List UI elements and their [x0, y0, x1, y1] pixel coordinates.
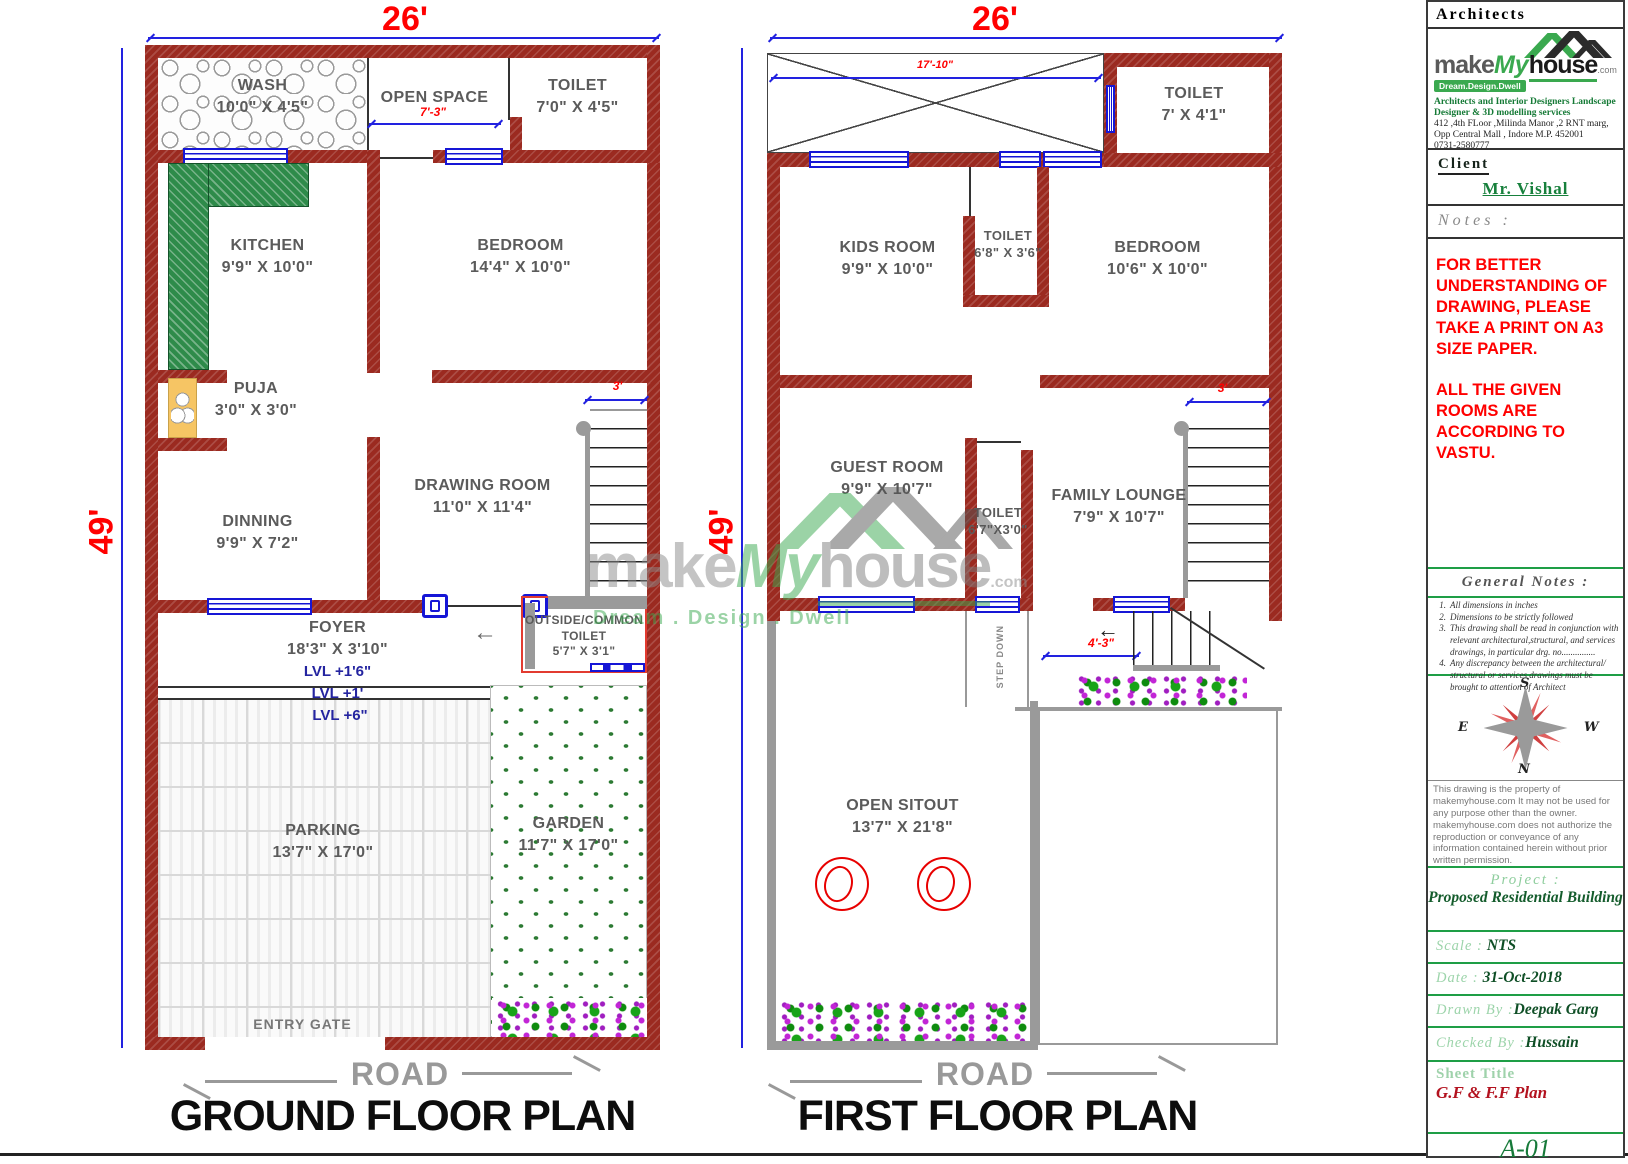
partition-line: [977, 441, 1021, 443]
stair-newel: [1174, 421, 1189, 436]
wall: [963, 295, 1049, 307]
wall: [145, 45, 158, 1050]
gf-title: GROUND FLOOR PLAN: [145, 1092, 660, 1141]
planter-flowers: [1073, 673, 1247, 707]
staircase-lower-treads: [1133, 611, 1220, 667]
ff-width-dim: 26': [945, 0, 1045, 39]
ff-title: FIRST FLOOR PLAN: [740, 1092, 1255, 1141]
first-floor-plan: 17'-10" 3' STEP DOWN 4'-3" ←: [767, 45, 1282, 1050]
staircase-treads: [590, 428, 647, 600]
compass-block: S E W N: [1428, 676, 1623, 780]
room-label-bedroom: BEDROOM 10'6" X 10'0": [1065, 237, 1250, 282]
ground-floor-plan: 3' ← WASH 10'0" X 4'5" OPEN SPACE 7'-3" …: [145, 45, 660, 1050]
wall: [1269, 53, 1282, 621]
general-note: 2.Dimensions to be strictly followed: [1430, 612, 1619, 624]
wall: [367, 437, 380, 600]
client-label: Client: [1438, 156, 1489, 175]
step-down-label: STEP DOWN: [995, 625, 1005, 688]
room-label-kids-room: KIDS ROOM 9'9" X 10'0": [795, 237, 980, 282]
wall: [647, 45, 660, 1050]
room-label-garden: GARDEN 11'7" X 17'0": [497, 813, 640, 858]
level-label-mid: LVL +1': [260, 685, 415, 702]
copyright-text: This drawing is the property of makemyho…: [1428, 780, 1623, 866]
garden-flower-bed: [492, 998, 647, 1037]
garden-pattern: [490, 685, 647, 1037]
stair-newel: [576, 421, 591, 436]
general-note: 3.This drawing shall be read in conjunct…: [1430, 623, 1619, 658]
logo-block: makeMyhouse.com Dream.Design.Dwell: [1428, 29, 1623, 95]
sheet-title-value: G.F & F.F Plan: [1436, 1083, 1615, 1103]
sheet-title-block: Sheet Title G.F & F.F Plan: [1428, 1060, 1623, 1132]
wall: [780, 598, 818, 611]
ff-road-line-left: [790, 1080, 922, 1083]
gf-width-dim-line: [148, 37, 659, 39]
project-block: Project : Proposed Residential Building: [1428, 866, 1623, 930]
compass-star: [1484, 686, 1568, 770]
level-label-foyer: LVL +1'6": [265, 663, 410, 680]
room-label-toilet-low: TOILET 6'7"X3'0": [960, 505, 1036, 539]
wall: [1104, 53, 1282, 67]
corridor-line: [1027, 611, 1029, 707]
stair-rail: [585, 428, 590, 600]
wall: [158, 438, 227, 451]
gf-stair-dim-line: [585, 399, 647, 401]
firm-address2: Opp Central Mall , Indore M.P. 452001: [1434, 130, 1617, 141]
puja-platform: [168, 378, 197, 438]
gf-road-line-right: [462, 1072, 572, 1075]
stair-landing-line: [590, 409, 647, 411]
ff-height-dim: 49': [703, 502, 742, 562]
general-notes-list: 1.All dimensions in inches 2.Dimensions …: [1428, 598, 1623, 676]
title-block: Architects makeMyhouse.com Dream.Design.…: [1426, 0, 1625, 1158]
ff-stair-dim-line: [1187, 401, 1269, 403]
wall: [145, 45, 660, 58]
wall: [145, 1037, 205, 1050]
room-label-kitchen: KITCHEN 9'9" X 10'0": [185, 235, 350, 280]
sitout-flower-bed: [776, 999, 1030, 1041]
direction-arrow-icon: ←: [473, 621, 497, 645]
scale-row: Scale : NTS: [1428, 930, 1623, 962]
gray-wall: [1133, 665, 1220, 671]
ff-stair-dim: 3': [1195, 381, 1250, 395]
general-note: 1.All dimensions in inches: [1430, 600, 1619, 612]
room-label-guest-room: GUEST ROOM 9'9" X 10'7": [792, 457, 982, 502]
gray-wall: [767, 621, 776, 1050]
notes-body: FOR BETTER UNDERSTANDING OF DRAWING, PLE…: [1428, 239, 1623, 567]
door-symbol: [422, 594, 448, 618]
gf-stair-dim: 3': [590, 379, 645, 393]
room-label-open-sitout: OPEN SITOUT 13'7" X 21'8": [815, 795, 990, 840]
puja-flower-icon: [171, 387, 194, 429]
ff-road-tick-right: [1158, 1055, 1186, 1071]
wall: [1104, 153, 1282, 167]
ff-terrace-dim: 17'-10": [890, 59, 980, 71]
window: [809, 151, 909, 168]
room-label-parking: PARKING 13'7" X 17'0": [233, 820, 413, 865]
client-name: Mr. Vishal: [1483, 179, 1569, 198]
compass-south: S: [1520, 676, 1529, 691]
wall: [1020, 598, 1033, 611]
chair-symbol: [815, 857, 869, 911]
room-label-drawing-room: DRAWING ROOM 11'0" X 11'4": [380, 475, 585, 520]
gf-road-tick-right: [573, 1055, 601, 1071]
gray-wall: [767, 1041, 1038, 1050]
parking-floor-pattern: [158, 700, 490, 1037]
room-label-family-lounge: FAMILY LOUNGE 7'9" X 10'7": [1035, 485, 1203, 530]
gf-width-dim: 26': [355, 0, 455, 39]
room-label-wash: WASH 10'0" X 4'5": [170, 75, 355, 120]
window: [999, 151, 1041, 168]
wall: [915, 598, 975, 611]
notes-header: Notes :: [1428, 206, 1623, 239]
room-label-foyer: FOYER 18'3" X 3'10": [240, 617, 435, 662]
wall: [780, 375, 972, 388]
wall: [312, 600, 422, 613]
ff-road-line-right: [1047, 1072, 1157, 1075]
wall: [385, 1037, 660, 1050]
sheet-bottom-border: [0, 1153, 1628, 1156]
ff-step-dim-line: [1043, 655, 1139, 657]
gf-open-space-dim-line: [369, 123, 501, 125]
open-terrace: [1038, 707, 1278, 1045]
compass-east: E: [1458, 720, 1468, 735]
project-label: Project :: [1428, 872, 1623, 889]
wall: [767, 153, 780, 621]
architects-header: Architects: [1428, 2, 1623, 29]
window: [818, 596, 915, 613]
opening-line: [448, 605, 522, 607]
ff-terrace-dim-line: [771, 77, 1101, 79]
room-label-dinning: DINNING 9'9" X 7'2": [175, 511, 340, 556]
gf-road-line-left: [205, 1080, 337, 1083]
date-row: Date : 31-Oct-2018: [1428, 962, 1623, 994]
compass-north: N: [1518, 762, 1530, 777]
level-label-low: LVL +6": [285, 707, 395, 724]
room-label-toilet: TOILET 7'0" X 4'5": [510, 75, 645, 120]
window: [975, 596, 1020, 613]
ff-width-dim-line: [770, 37, 1282, 39]
room-label-toilet-top: TOILET 7' X 4'1": [1119, 83, 1269, 128]
wall: [158, 600, 207, 613]
corridor-line: [965, 611, 967, 707]
window: [1043, 151, 1102, 168]
gray-wall: [1030, 701, 1038, 1050]
logo-tagline: Dream.Design.Dwell: [1434, 80, 1526, 92]
wall: [367, 150, 380, 373]
room-label-toilet-mid: TOILET 6'8" X 3'6": [967, 228, 1049, 262]
entry-gate-label: ENTRY GATE: [230, 1015, 375, 1035]
room-label-outside-toilet: OUTSIDE/COMMON TOILET 5'7" X 3'1": [525, 613, 643, 660]
sheet-title-label: Sheet Title: [1436, 1066, 1615, 1083]
checked-by-row: Checked By :Hussain: [1428, 1026, 1623, 1060]
firm-line1: Architects and Interior Designers Landsc…: [1434, 97, 1617, 108]
firm-line2: Designer & 3D modelling services: [1434, 108, 1617, 119]
compass-west: W: [1584, 720, 1599, 735]
window: [207, 598, 312, 615]
room-label-puja: PUJA 3'0" X 3'0": [197, 378, 315, 423]
stair-direction-arrow-icon: ←: [1097, 619, 1119, 641]
project-name: Proposed Residential Building: [1428, 889, 1623, 908]
firm-info: Architects and Interior Designers Landsc…: [1428, 95, 1623, 150]
wall: [1093, 598, 1113, 611]
sheet-number: A-01: [1428, 1132, 1623, 1158]
window: [590, 663, 645, 672]
gf-road-label: ROAD: [340, 1056, 460, 1093]
client-block: Client Mr. Vishal: [1428, 150, 1623, 206]
logo-text: makeMyhouse.com: [1434, 51, 1617, 80]
gf-open-space-dim: 7'-3": [377, 105, 489, 119]
partition-line: [969, 167, 971, 216]
gray-wall: [548, 596, 647, 609]
window: [1106, 85, 1115, 133]
drawn-by-row: Drawn By :Deepak Garg: [1428, 994, 1623, 1026]
ff-road-label: ROAD: [925, 1056, 1045, 1093]
firm-address1: 412 ,4th FLoor ,Milinda Manor ,2 RNT mar…: [1434, 119, 1617, 130]
note-red-2: ALL THE GIVEN ROOMS ARE ACCORDING TO VAS…: [1436, 380, 1615, 464]
general-notes-header: General Notes :: [1428, 567, 1623, 598]
note-red-1: FOR BETTER UNDERSTANDING OF DRAWING, PLE…: [1436, 255, 1615, 360]
chair-symbol: [917, 857, 971, 911]
gf-height-dim: 49': [83, 502, 122, 562]
window: [445, 148, 503, 165]
room-label-bedroom: BEDROOM 14'4" X 10'0": [433, 235, 608, 280]
